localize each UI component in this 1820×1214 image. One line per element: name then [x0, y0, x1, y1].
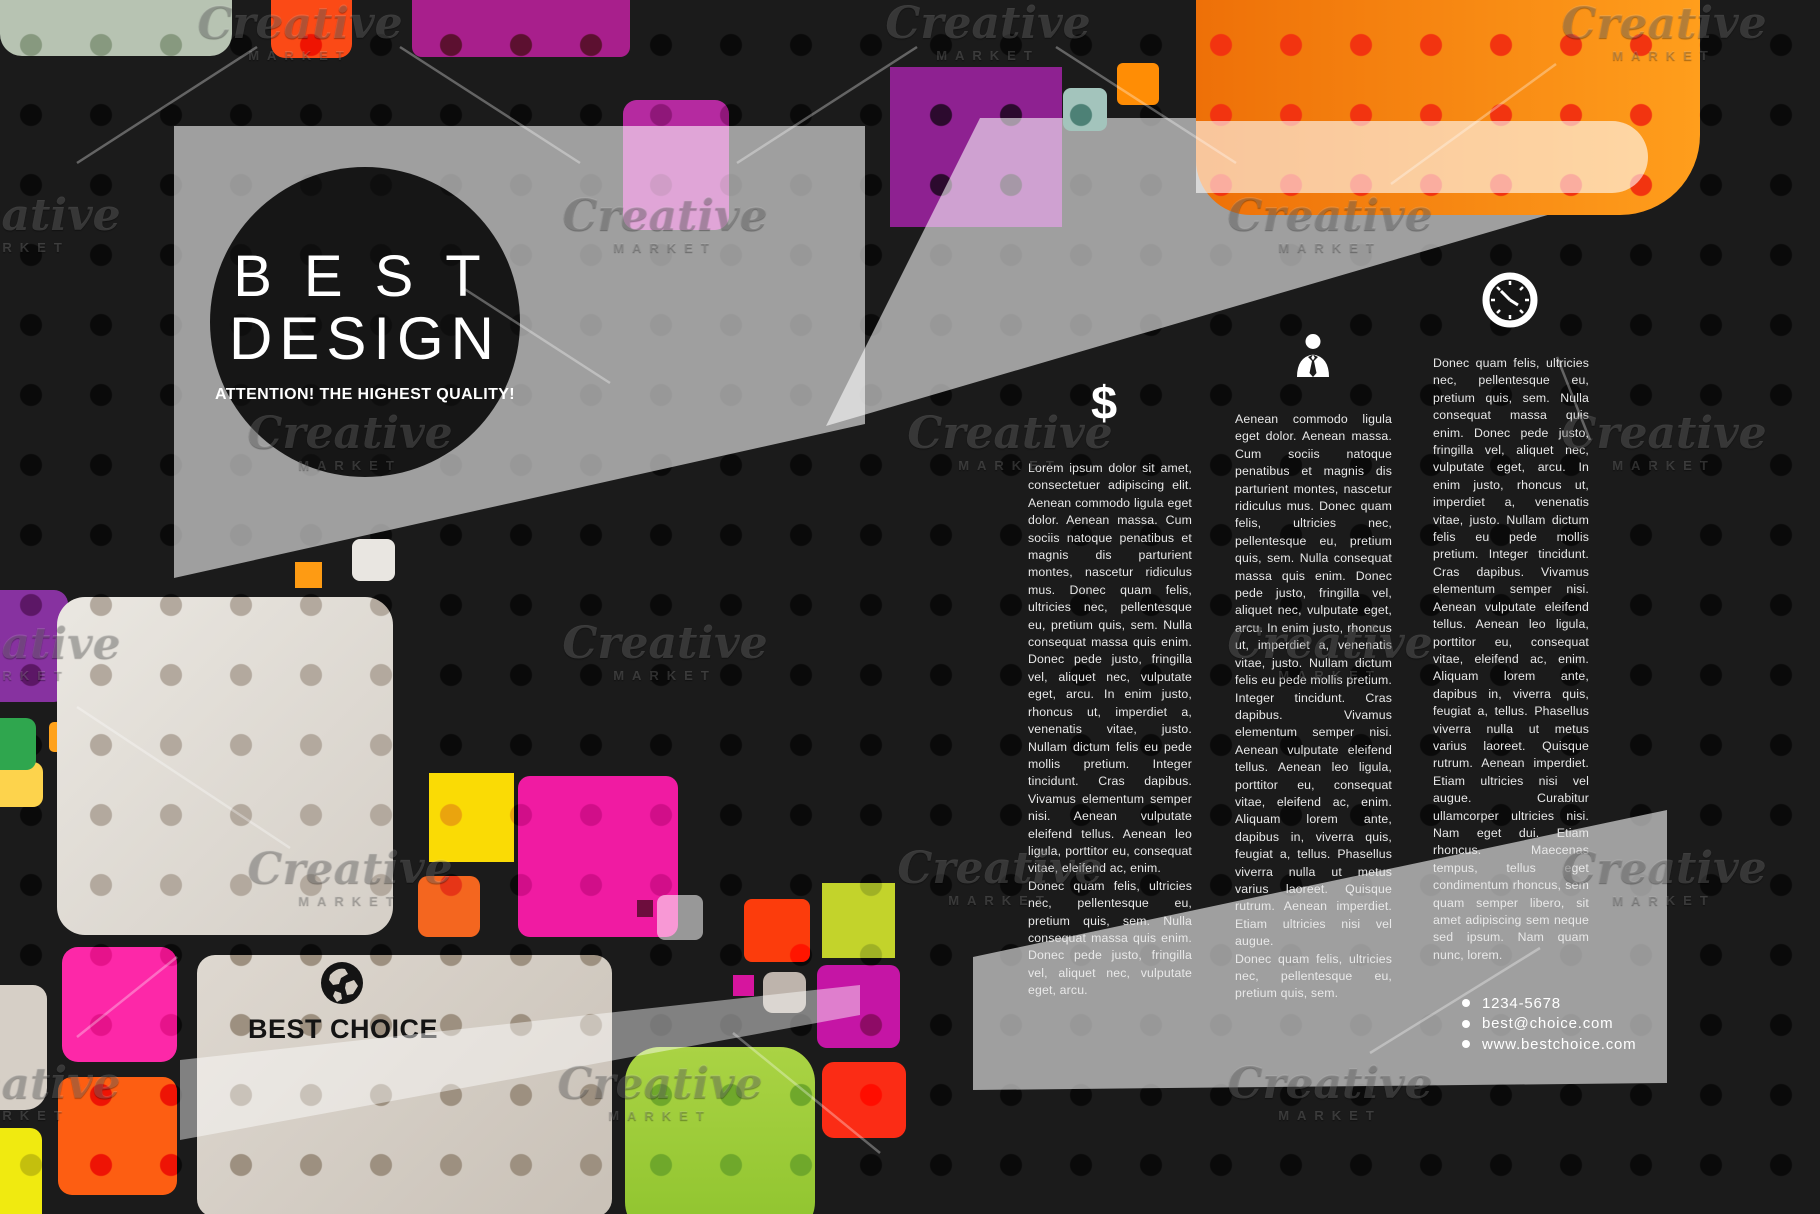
decor-square-beige-left-partial	[0, 985, 47, 1110]
contact-email: best@choice.com	[1462, 1014, 1636, 1035]
bullet-icon	[1462, 1040, 1470, 1048]
ribbon-highlight-pill	[1196, 121, 1648, 193]
text-column-1: Lorem ipsum dolor sit amet, consectetuer…	[1028, 460, 1192, 1000]
text-column-3: Donec quam felis, ultricies nec, pellent…	[1433, 355, 1589, 964]
column-paragraph: Lorem ipsum dolor sit amet, consectetuer…	[1028, 460, 1192, 878]
column-paragraph: Donec quam felis, ultricies nec, pellent…	[1028, 878, 1192, 1000]
column-paragraph: Donec quam felis, ultricies nec, pellent…	[1235, 951, 1392, 1003]
text-column-2: Aenean commodo ligula eget dolor. Aenean…	[1235, 411, 1392, 1003]
decor-square-orange-bottom	[58, 1077, 177, 1195]
decor-square-glass-small	[657, 895, 703, 940]
decor-square-red-bottom	[822, 1062, 906, 1138]
watermark-script-text: Creative	[868, 2, 1108, 46]
column-paragraph: Donec quam felis, ultricies nec, pellent…	[1433, 355, 1589, 964]
globe-icon	[320, 961, 364, 1005]
logo-tagline: ATTENTION! THE HIGHEST QUALITY!	[215, 386, 515, 404]
decor-square-chartreuse	[822, 883, 895, 958]
decor-square-orange-mid	[295, 562, 322, 588]
decor-square-hotpink-big	[518, 776, 678, 937]
logo-title-line2: DESIGN	[229, 306, 501, 372]
contact-website: www.bestchoice.com	[1462, 1034, 1636, 1055]
watermark: Creative MARKET	[868, 2, 1108, 63]
decor-square-lime-large	[625, 1047, 815, 1214]
logo-title-line1: BEST	[217, 248, 513, 306]
watermark-caption-text: MARKET	[0, 240, 138, 255]
decor-square-hotpink-bottom	[62, 947, 177, 1062]
decor-square-sage	[0, 0, 232, 56]
logo-circle: BEST DESIGN ATTENTION! THE HIGHEST QUALI…	[210, 167, 520, 477]
decor-square-white-mid	[352, 539, 395, 581]
decor-square-yellow-bottom	[0, 1128, 42, 1214]
decor-square-teal	[1063, 88, 1107, 131]
watermark-caption-text: MARKET	[868, 48, 1108, 63]
watermark-caption-text: MARKET	[1210, 1108, 1450, 1123]
decor-square-maroon-tiny	[637, 900, 653, 917]
decor-square-magenta-top	[412, 0, 630, 57]
decor-square-cream-large	[57, 597, 393, 935]
decor-square-orange-red-mid	[418, 876, 480, 937]
watermark-script-text: Creative	[545, 622, 785, 666]
clock-icon	[1482, 272, 1538, 328]
decor-square-green-left	[0, 718, 36, 770]
decor-square-orange-small-top	[1117, 63, 1159, 105]
decor-square-orange-red-top	[271, 0, 352, 58]
decor-square-red-small	[744, 899, 810, 962]
watermark: Creative MARKET	[545, 622, 785, 683]
bullet-icon	[1462, 1020, 1470, 1028]
watermark-script-text: Creative	[0, 194, 138, 238]
dollar-icon: $	[1091, 375, 1117, 430]
contact-phone: 1234-5678	[1462, 993, 1636, 1014]
watermark-caption-text: MARKET	[545, 668, 785, 683]
watermark: Creative MARKET	[0, 194, 138, 255]
column-paragraph: Aenean commodo ligula eget dolor. Aenean…	[1235, 411, 1392, 951]
bullet-icon	[1462, 999, 1470, 1007]
person-icon	[1293, 333, 1333, 377]
poster-canvas: BEST DESIGN ATTENTION! THE HIGHEST QUALI…	[0, 0, 1820, 1214]
contact-block: 1234-5678 best@choice.com www.bestchoice…	[1462, 993, 1636, 1055]
decor-square-yellow-big	[429, 773, 514, 862]
decor-square-magenta-tiny	[733, 975, 754, 996]
